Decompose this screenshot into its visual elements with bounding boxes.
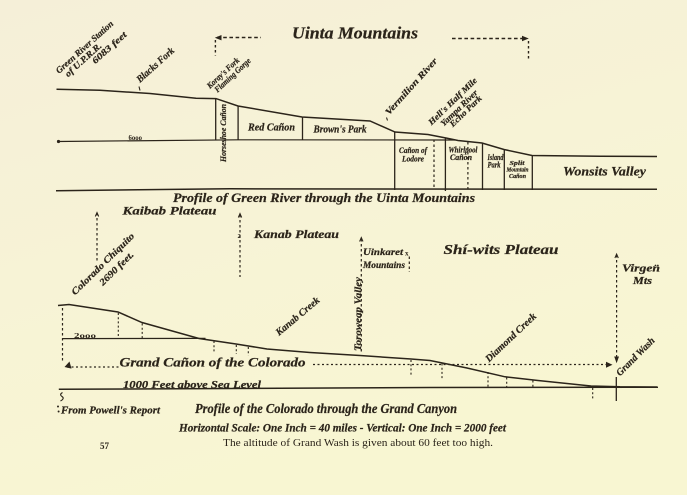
svg-text:Profile of Green River through: Profile of Green River through the Uinta… xyxy=(173,191,475,205)
svg-text:From Powell's Report: From Powell's Report xyxy=(60,406,161,417)
svg-text:Profile of the Colorado throug: Profile of the Colorado through the Gran… xyxy=(195,402,457,417)
svg-text:6ooo: 6ooo xyxy=(129,135,143,142)
svg-text:Kaibab Plateau: Kaibab Plateau xyxy=(121,206,217,218)
svg-text:Virgen̈: Virgen̈ xyxy=(622,264,660,275)
svg-text:Shí-wits Plateau: Shí-wits Plateau xyxy=(444,243,559,258)
svg-text:Brown's Park: Brown's Park xyxy=(313,125,367,136)
svg-text:2: 2 xyxy=(238,233,241,240)
svg-text:Uinkaret: Uinkaret xyxy=(363,247,404,257)
svg-text:Park: Park xyxy=(488,160,501,169)
svg-text:Uinta Mountains: Uinta Mountains xyxy=(292,24,418,43)
svg-text:Red Cañon: Red Cañon xyxy=(247,123,295,134)
svg-text:Cañon: Cañon xyxy=(509,173,526,180)
svg-text:Lodore: Lodore xyxy=(401,154,424,164)
svg-text:2ooo: 2ooo xyxy=(74,331,96,340)
svg-text:Mts: Mts xyxy=(632,276,652,287)
svg-text:Mountains: Mountains xyxy=(362,260,406,270)
svg-text:Wonsits Valley: Wonsits Valley xyxy=(563,164,646,179)
svg-text:x: x xyxy=(405,250,409,258)
svg-text:Toroweap Valley: Toroweap Valley xyxy=(354,276,364,351)
svg-text:The altitude of Grand Wash is: The altitude of Grand Wash is given abou… xyxy=(223,437,493,449)
svg-text:Horseshoe Cañon: Horseshoe Cañon xyxy=(218,104,228,163)
svg-text:Cañon: Cañon xyxy=(450,152,472,162)
svg-text:Grand Cañon of the Colorado: Grand Cañon of the Colorado xyxy=(120,356,306,370)
svg-text:57: 57 xyxy=(100,441,110,451)
svg-text:Horizontal Scale: One Inch = 4: Horizontal Scale: One Inch = 40 miles - … xyxy=(178,421,507,435)
svg-text:Kanab Plateau: Kanab Plateau xyxy=(253,229,340,241)
